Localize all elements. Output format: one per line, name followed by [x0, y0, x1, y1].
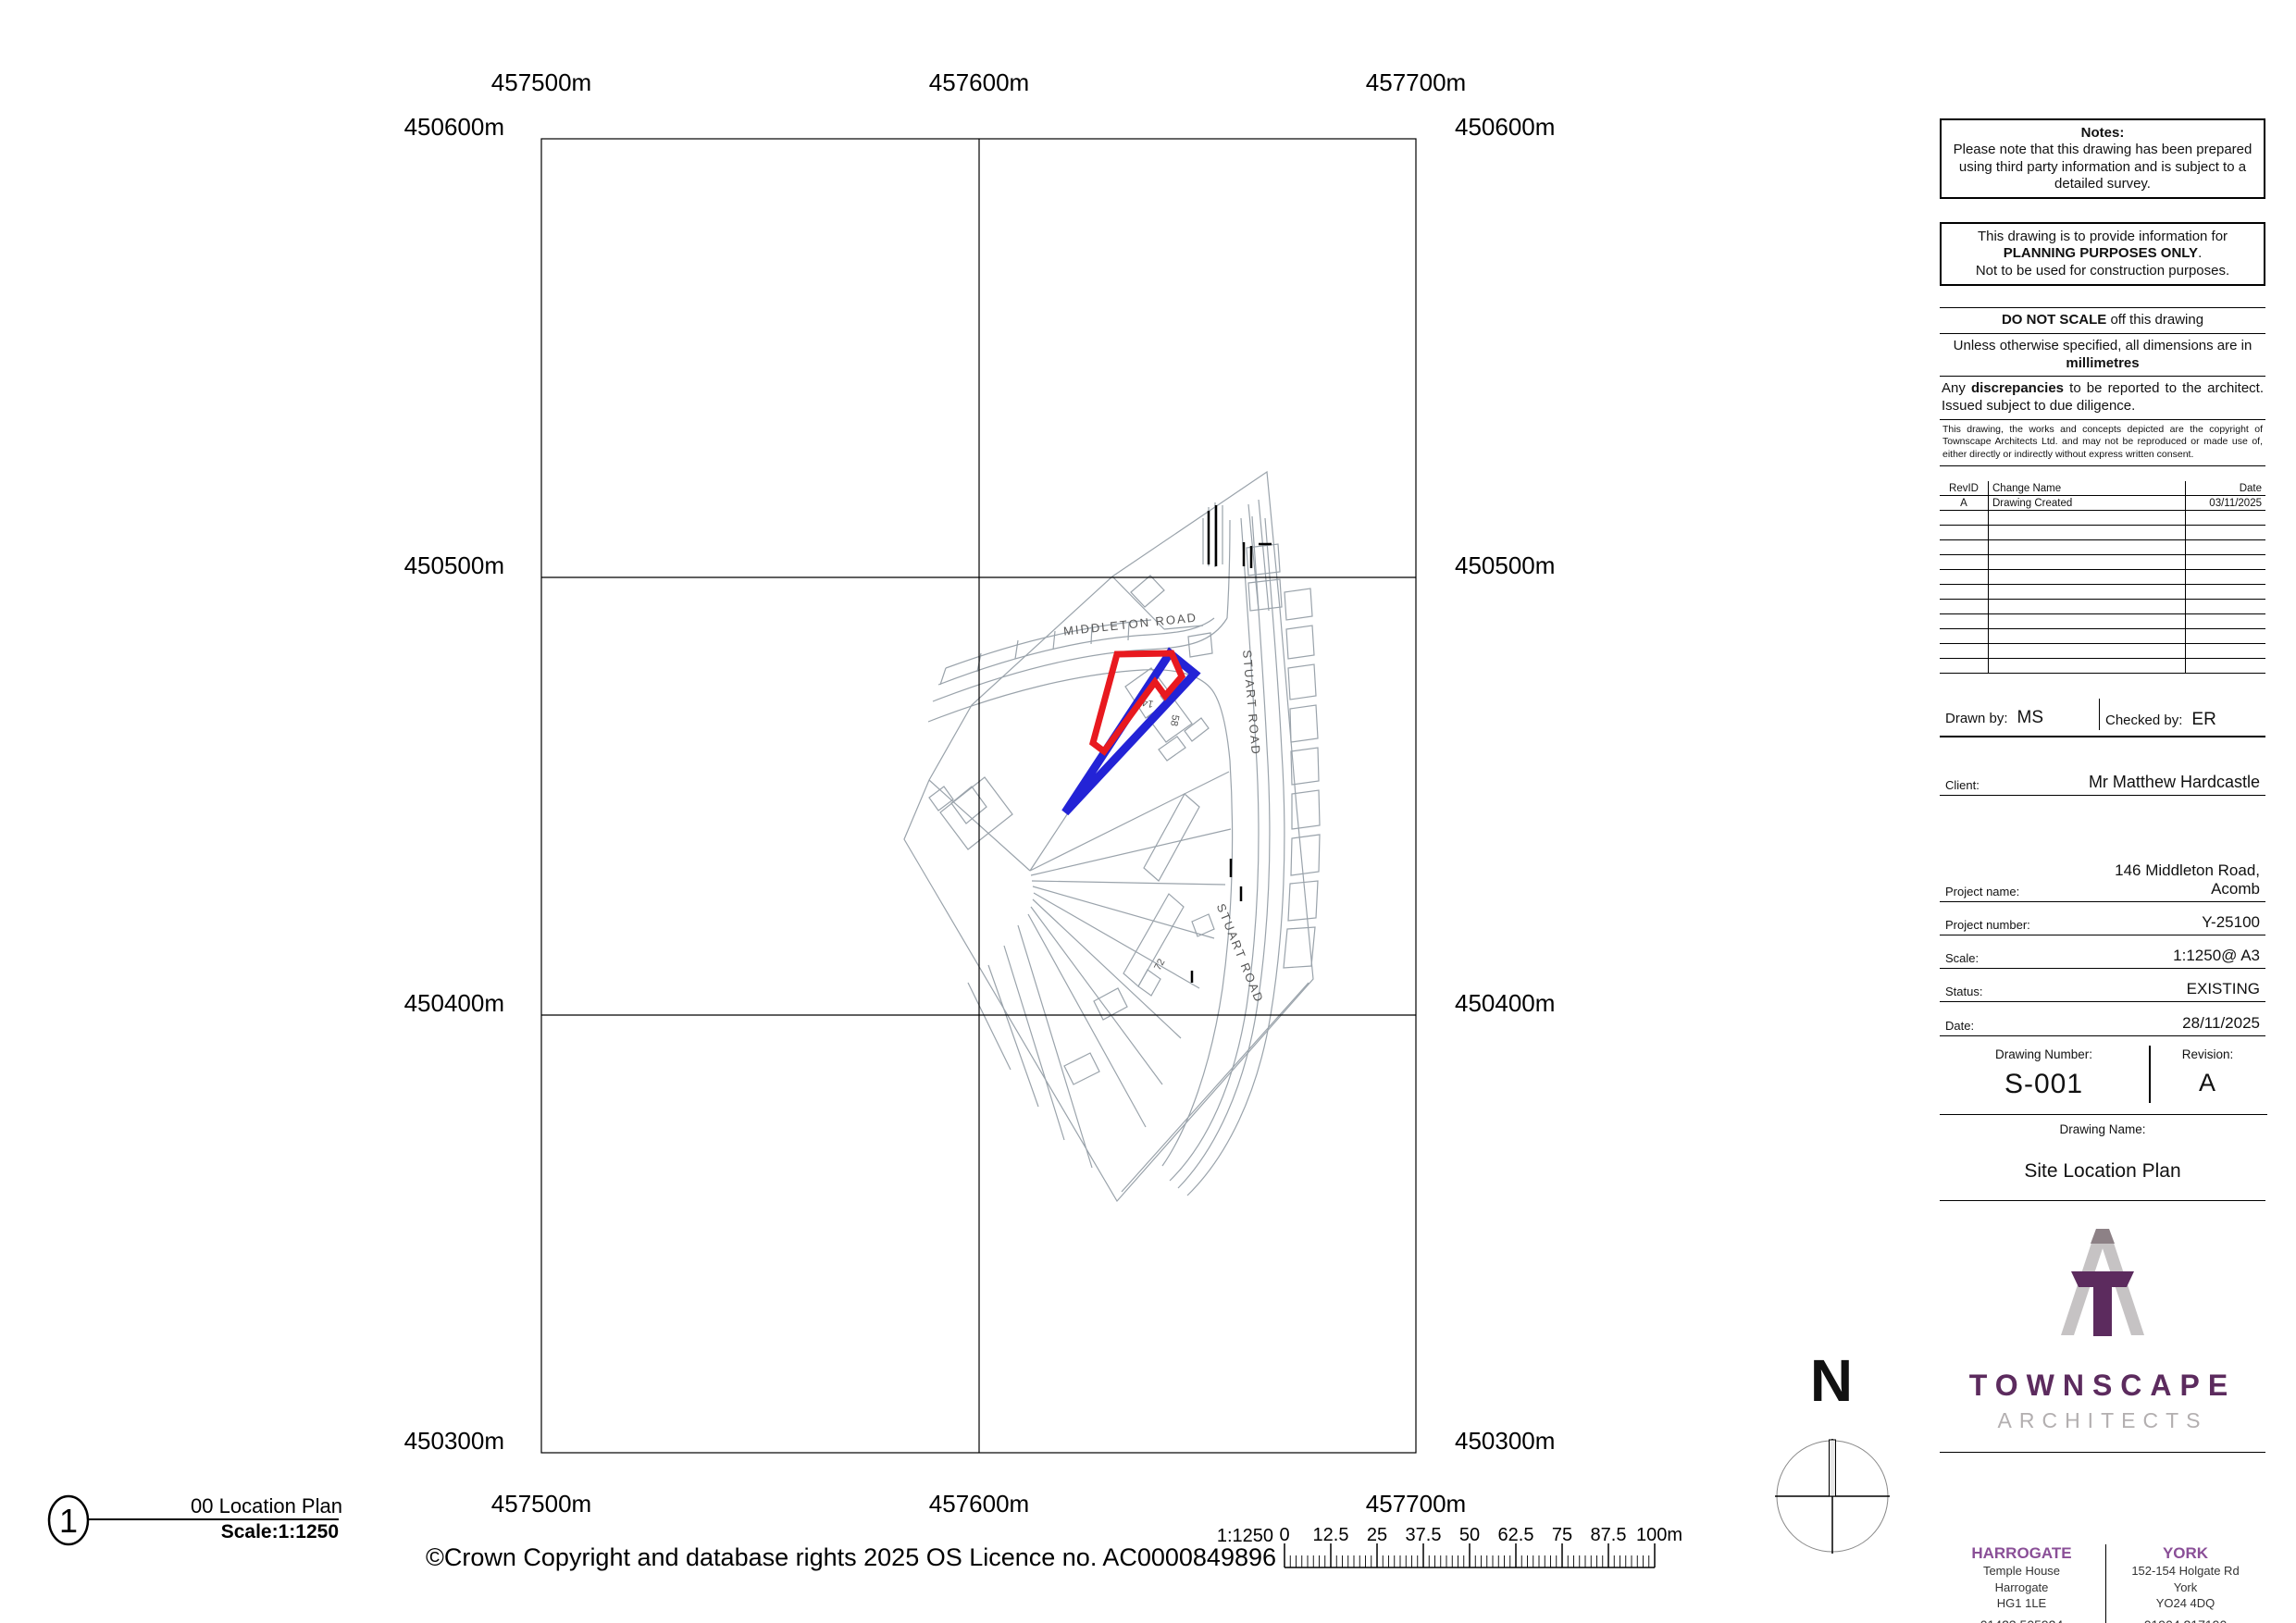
- drawn-by-label: Drawn by:: [1945, 711, 2008, 726]
- map-text-labels: MIDDLETON ROAD STUART ROAD STUART ROAD 1…: [1062, 610, 1266, 1005]
- project-name-label: Project name:: [1945, 885, 2019, 898]
- northing-label-right: 450400m: [1455, 989, 1555, 1017]
- revision-row-empty: [1940, 659, 2265, 674]
- drawing-name-value: Site Location Plan: [1940, 1160, 2265, 1183]
- revision-header-name: Change Name: [1989, 481, 2186, 496]
- notes-box: Notes: Please note that this drawing has…: [1940, 118, 2265, 199]
- client-row: Client: Mr Matthew Hardcastle: [1940, 761, 2265, 796]
- north-arrow: N: [1775, 1347, 1890, 1554]
- revision-row-empty: [1940, 570, 2265, 585]
- house-number-72: 72: [1152, 957, 1167, 972]
- project-name-row: Project name: 146 Middleton Road, Acomb: [1940, 835, 2265, 902]
- revision-row-empty: [1940, 600, 2265, 614]
- client-value: Mr Matthew Hardcastle: [2089, 773, 2260, 792]
- drawn-by-value: MS: [2017, 708, 2044, 728]
- office-york: YORK 152-154 Holgate Rd York YO24 4DQ 01…: [2104, 1531, 2267, 1623]
- easting-label-bottom: 457500m: [491, 1490, 591, 1518]
- offices-block: HARROGATE Temple House Harrogate HG1 1LE…: [1940, 1531, 2267, 1623]
- easting-label-bottom: 457700m: [1366, 1490, 1466, 1518]
- svg-text:25: 25: [1367, 1525, 1387, 1545]
- northing-label-right: 450600m: [1455, 113, 1555, 141]
- svg-text:100m: 100m: [1636, 1525, 1682, 1545]
- easting-label-top: 457500m: [491, 68, 591, 96]
- viewport-callout: 1 00 Location Plan Scale:1:1250: [49, 1494, 342, 1544]
- svg-text:12.5: 12.5: [1313, 1525, 1349, 1545]
- northing-label-left: 450400m: [404, 989, 504, 1017]
- project-number-label: Project number:: [1945, 918, 2030, 932]
- planning-line1: This drawing is to provide information f…: [1949, 229, 2256, 245]
- drawing-number-block: Drawing Number: S-001 Revision: A: [1940, 1036, 2267, 1115]
- project-number-value: Y-25100: [2202, 913, 2260, 932]
- revision-id: A: [1940, 496, 1989, 511]
- northing-label-left: 450500m: [404, 551, 504, 579]
- planning-line3: Not to be used for construction purposes…: [1949, 263, 2256, 279]
- townscape-logo-icon: [2047, 1227, 2158, 1347]
- brand-wordmark: TOWNSCAPE: [1940, 1369, 2265, 1403]
- revision-row-empty: [1940, 511, 2265, 526]
- date-row: Date: 28/11/2025: [1940, 1002, 2265, 1036]
- office-harrogate: HARROGATE Temple House Harrogate HG1 1LE…: [1940, 1531, 2104, 1623]
- status-value: EXISTING: [2187, 980, 2260, 998]
- status-row: Status: EXISTING: [1940, 969, 2265, 1002]
- revision-row: A Drawing Created 03/11/2025: [1940, 496, 2265, 511]
- scale-bar-tick-labels: 0 12.5 25 37.5 50 62.5 75 87.5 100m: [1279, 1525, 1682, 1545]
- client-label: Client:: [1945, 778, 1980, 792]
- revision-row-empty: [1940, 614, 2265, 629]
- brand-block: TOWNSCAPE ARCHITECTS: [1940, 1201, 2265, 1453]
- svg-text:75: 75: [1552, 1525, 1572, 1545]
- road-label-stuart-upper: STUART ROAD: [1240, 650, 1263, 757]
- drawing-name-block: Drawing Name: Site Location Plan: [1940, 1115, 2265, 1201]
- office-city: YORK: [2104, 1544, 2267, 1563]
- revision-header-revid: RevID: [1940, 481, 1989, 496]
- drawing-name-label: Drawing Name:: [1940, 1122, 2265, 1136]
- road-label-middleton: MIDDLETON ROAD: [1062, 610, 1198, 638]
- viewport-title: 00 Location Plan: [191, 1494, 342, 1518]
- scale-bar-ruler: [1285, 1543, 1655, 1567]
- general-notes: DO NOT SCALE off this drawing Unless oth…: [1940, 307, 2265, 466]
- project-name-line1: 146 Middleton Road,: [2115, 861, 2260, 879]
- scale-row: Scale: 1:1250@ A3: [1940, 935, 2265, 969]
- easting-label-top: 457600m: [929, 68, 1029, 96]
- office-phone: 01904 217190: [2104, 1617, 2267, 1623]
- revision-row-empty: [1940, 644, 2265, 659]
- viewport-number: 1: [59, 1502, 78, 1540]
- svg-text:62.5: 62.5: [1498, 1525, 1534, 1545]
- revision-row-empty: [1940, 555, 2265, 570]
- revision-row-empty: [1940, 629, 2265, 644]
- revision-label: Revision:: [2148, 1047, 2267, 1061]
- grid-lines: [541, 139, 1416, 1453]
- project-number-row: Project number: Y-25100: [1940, 902, 2265, 935]
- scale-bar-ratio: 1:1250: [1217, 1526, 1273, 1546]
- brand-wordmark-sub: ARCHITECTS: [1940, 1408, 2265, 1433]
- easting-label-bottom: 457600m: [929, 1490, 1029, 1518]
- drawing-sheet: 457500m 457600m 457700m 457500m 457600m …: [0, 0, 2296, 1623]
- copyright-note: This drawing, the works and concepts dep…: [1940, 420, 2265, 466]
- notes-title: Notes:: [1949, 125, 2256, 142]
- svg-text:37.5: 37.5: [1406, 1525, 1442, 1545]
- house-number-58: 58: [1168, 713, 1181, 726]
- date-label: Date:: [1945, 1019, 1974, 1033]
- planning-box: This drawing is to provide information f…: [1940, 222, 2265, 286]
- svg-text:87.5: 87.5: [1591, 1525, 1627, 1545]
- northing-label-left: 450600m: [404, 113, 504, 141]
- notes-body: Please note that this drawing has been p…: [1949, 142, 2256, 192]
- northing-label-left: 450300m: [404, 1427, 504, 1455]
- scale-label: Scale:: [1945, 951, 1979, 965]
- revision-row-empty: [1940, 540, 2265, 555]
- os-copyright: ©Crown Copyright and database rights 202…: [426, 1543, 1276, 1571]
- date-value: 28/11/2025: [2182, 1014, 2260, 1033]
- svg-text:50: 50: [1459, 1525, 1480, 1545]
- dimensions-note: Unless otherwise specified, all dimensio…: [1940, 334, 2265, 378]
- north-label: N: [1810, 1347, 1853, 1414]
- revision-header-row: RevID Change Name Date: [1940, 481, 2265, 496]
- revision-value: A: [2148, 1069, 2267, 1097]
- do-not-scale-note: DO NOT SCALE off this drawing: [1940, 308, 2265, 334]
- discrepancies-note: Any discrepancies to be reported to the …: [1940, 377, 2265, 420]
- northing-label-right: 450500m: [1455, 551, 1555, 579]
- revision-row-empty: [1940, 585, 2265, 600]
- scale-bar: 1:1250 0 12.5 25 37.5 50 62.5 75 87.5 10…: [1217, 1525, 1682, 1567]
- revision-table: RevID Change Name Date A Drawing Created…: [1940, 481, 2265, 674]
- checked-by-value: ER: [2191, 710, 2215, 730]
- office-city: HARROGATE: [1940, 1544, 2104, 1563]
- compass-needle: [1830, 1440, 1836, 1496]
- project-name-line2: Acomb: [2211, 880, 2260, 898]
- easting-label-top: 457700m: [1366, 68, 1466, 96]
- revision-change-name: Drawing Created: [1989, 496, 2186, 511]
- northing-label-right: 450300m: [1455, 1427, 1555, 1455]
- revision-date: 03/11/2025: [2186, 496, 2266, 511]
- drawing-number-label: Drawing Number:: [1940, 1047, 2148, 1061]
- drawing-number-value: S-001: [1940, 1069, 2148, 1100]
- drawn-checked-row: Drawn by: MS Checked by: ER: [1940, 691, 2265, 737]
- svg-text:0: 0: [1279, 1525, 1289, 1545]
- revision-header-date: Date: [2186, 481, 2266, 496]
- office-phone: 01423 505924: [1940, 1617, 2104, 1623]
- planning-line2: PLANNING PURPOSES ONLY: [2004, 245, 2198, 261]
- viewport-scale-label: Scale:1:1250: [221, 1521, 339, 1542]
- title-block: Notes: Please note that this drawing has…: [1940, 0, 2267, 1623]
- scale-value: 1:1250@ A3: [2173, 947, 2260, 965]
- status-label: Status:: [1945, 985, 1982, 998]
- revision-row-empty: [1940, 526, 2265, 540]
- map-linework: [904, 472, 1320, 1201]
- checked-by-label: Checked by:: [2105, 712, 2182, 728]
